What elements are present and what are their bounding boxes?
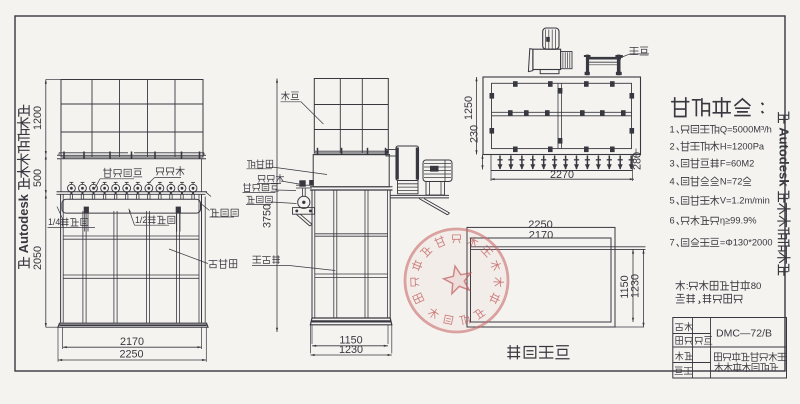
svg-text:Autodesk: Autodesk xyxy=(777,127,792,187)
svg-text:3: 3 xyxy=(670,158,675,168)
svg-text:2270: 2270 xyxy=(550,169,574,181)
svg-text:500: 500 xyxy=(32,169,44,187)
svg-text:7: 7 xyxy=(670,238,675,248)
svg-text:2250: 2250 xyxy=(119,349,143,361)
svg-text:N=72: N=72 xyxy=(720,176,742,186)
svg-text:H=1200Pa: H=1200Pa xyxy=(720,141,765,151)
svg-text:1/4: 1/4 xyxy=(48,217,60,227)
svg-text:1200: 1200 xyxy=(32,106,44,130)
svg-text:DMC—72/B: DMC—72/B xyxy=(716,327,772,339)
svg-text:Autodesk: Autodesk xyxy=(16,193,31,253)
svg-text:1230: 1230 xyxy=(630,274,642,298)
svg-text::: : xyxy=(686,281,689,292)
svg-text:80: 80 xyxy=(751,281,762,292)
svg-text:F=60M2: F=60M2 xyxy=(720,158,754,168)
svg-text:1/2: 1/2 xyxy=(135,215,147,225)
svg-text:Q=5000M³/h: Q=5000M³/h xyxy=(720,124,772,134)
svg-text:280: 280 xyxy=(632,152,644,170)
svg-text:2170: 2170 xyxy=(529,230,553,242)
svg-text:1: 1 xyxy=(670,124,675,134)
svg-text:6: 6 xyxy=(670,216,675,226)
svg-text:230: 230 xyxy=(469,125,481,143)
svg-text:=Φ130*2000: =Φ130*2000 xyxy=(720,238,773,248)
svg-text:η≥99.9%: η≥99.9% xyxy=(720,216,757,226)
svg-text:V=1.2m/min: V=1.2m/min xyxy=(720,196,770,206)
svg-text:2170: 2170 xyxy=(120,336,144,348)
svg-text:5: 5 xyxy=(670,196,675,206)
svg-text:3750: 3750 xyxy=(262,204,274,228)
svg-text:1230: 1230 xyxy=(339,344,363,356)
svg-text:2: 2 xyxy=(670,141,675,151)
svg-text:2050: 2050 xyxy=(32,246,44,270)
svg-text:1250: 1250 xyxy=(463,96,475,120)
svg-text:4: 4 xyxy=(670,176,675,186)
